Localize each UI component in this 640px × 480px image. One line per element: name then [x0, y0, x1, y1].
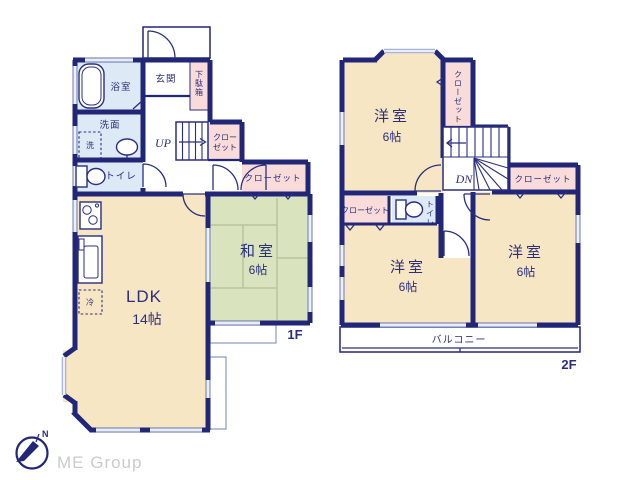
label-balcony: バルコニー [432, 334, 487, 346]
hall-door-arc [213, 165, 238, 190]
label-washroom: 洗面 [99, 119, 120, 131]
label-toilet-1f: トイレ [105, 171, 137, 182]
compass-north-label: N [42, 429, 49, 439]
stove-icon [80, 202, 101, 229]
floorplan-page: 玄関 下駄箱 浴室 洗面 洗 トイレ UP クロー ゼット クローゼット LDK… [0, 0, 640, 480]
room-bedroom-top [343, 60, 443, 193]
label-genkan: 玄関 [155, 73, 176, 85]
label-floor-1f: 1F [287, 327, 302, 342]
label-bedroom-top-size: 6帖 [383, 129, 402, 144]
label-bedroom-top: 洋室 [374, 108, 410, 125]
label-ldk-size: 14帖 [132, 311, 162, 327]
label-laundry: 洗 [86, 140, 94, 150]
label-closet-hall-1: クロー [213, 133, 237, 142]
label-washitsu: 和室 [240, 243, 276, 260]
floorplan-drawing: 玄関 下駄箱 浴室 洗面 洗 トイレ UP クロー ゼット クローゼット LDK… [0, 0, 640, 480]
stairs-down [443, 127, 508, 190]
label-bedroom-right: 洋室 [508, 244, 544, 261]
label-bedroom-mid: 洋室 [390, 259, 426, 276]
label-closet-right: クローゼット [514, 174, 571, 184]
label-stairs-up: UP [155, 136, 172, 150]
label-bath: 浴室 [110, 81, 131, 93]
label-closet-top: クローゼット [454, 70, 463, 124]
label-ldk: LDK [126, 287, 162, 306]
toilet-icon-1f [76, 166, 87, 187]
label-stairs-down: DN [455, 172, 474, 186]
toilet-icon-2f [396, 200, 406, 219]
sink-icon [117, 139, 138, 155]
toilet-door-arc [143, 164, 166, 187]
logo-company-name: ME Group [57, 453, 142, 472]
terrace-outline [210, 325, 276, 343]
label-closet-wide: クローゼット [244, 173, 301, 183]
label-bedroom-mid-size: 6帖 [399, 279, 418, 294]
label-closet-hall-2: ゼット [213, 142, 237, 152]
label-washitsu-size: 6帖 [249, 262, 268, 277]
label-fridge: 冷 [86, 297, 94, 307]
logo: N ME Group [16, 429, 142, 472]
fixtures-2f [396, 200, 423, 219]
label-getabako: 下駄箱 [195, 70, 204, 97]
stairs-up [176, 122, 208, 160]
bedroom-mid-door-arc [444, 231, 469, 256]
label-closet-left: クローゼット [341, 205, 389, 215]
label-toilet-2f: トイレ [426, 200, 435, 227]
label-floor-2f: 2F [561, 357, 576, 372]
label-bedroom-right-size: 6帖 [517, 264, 536, 279]
